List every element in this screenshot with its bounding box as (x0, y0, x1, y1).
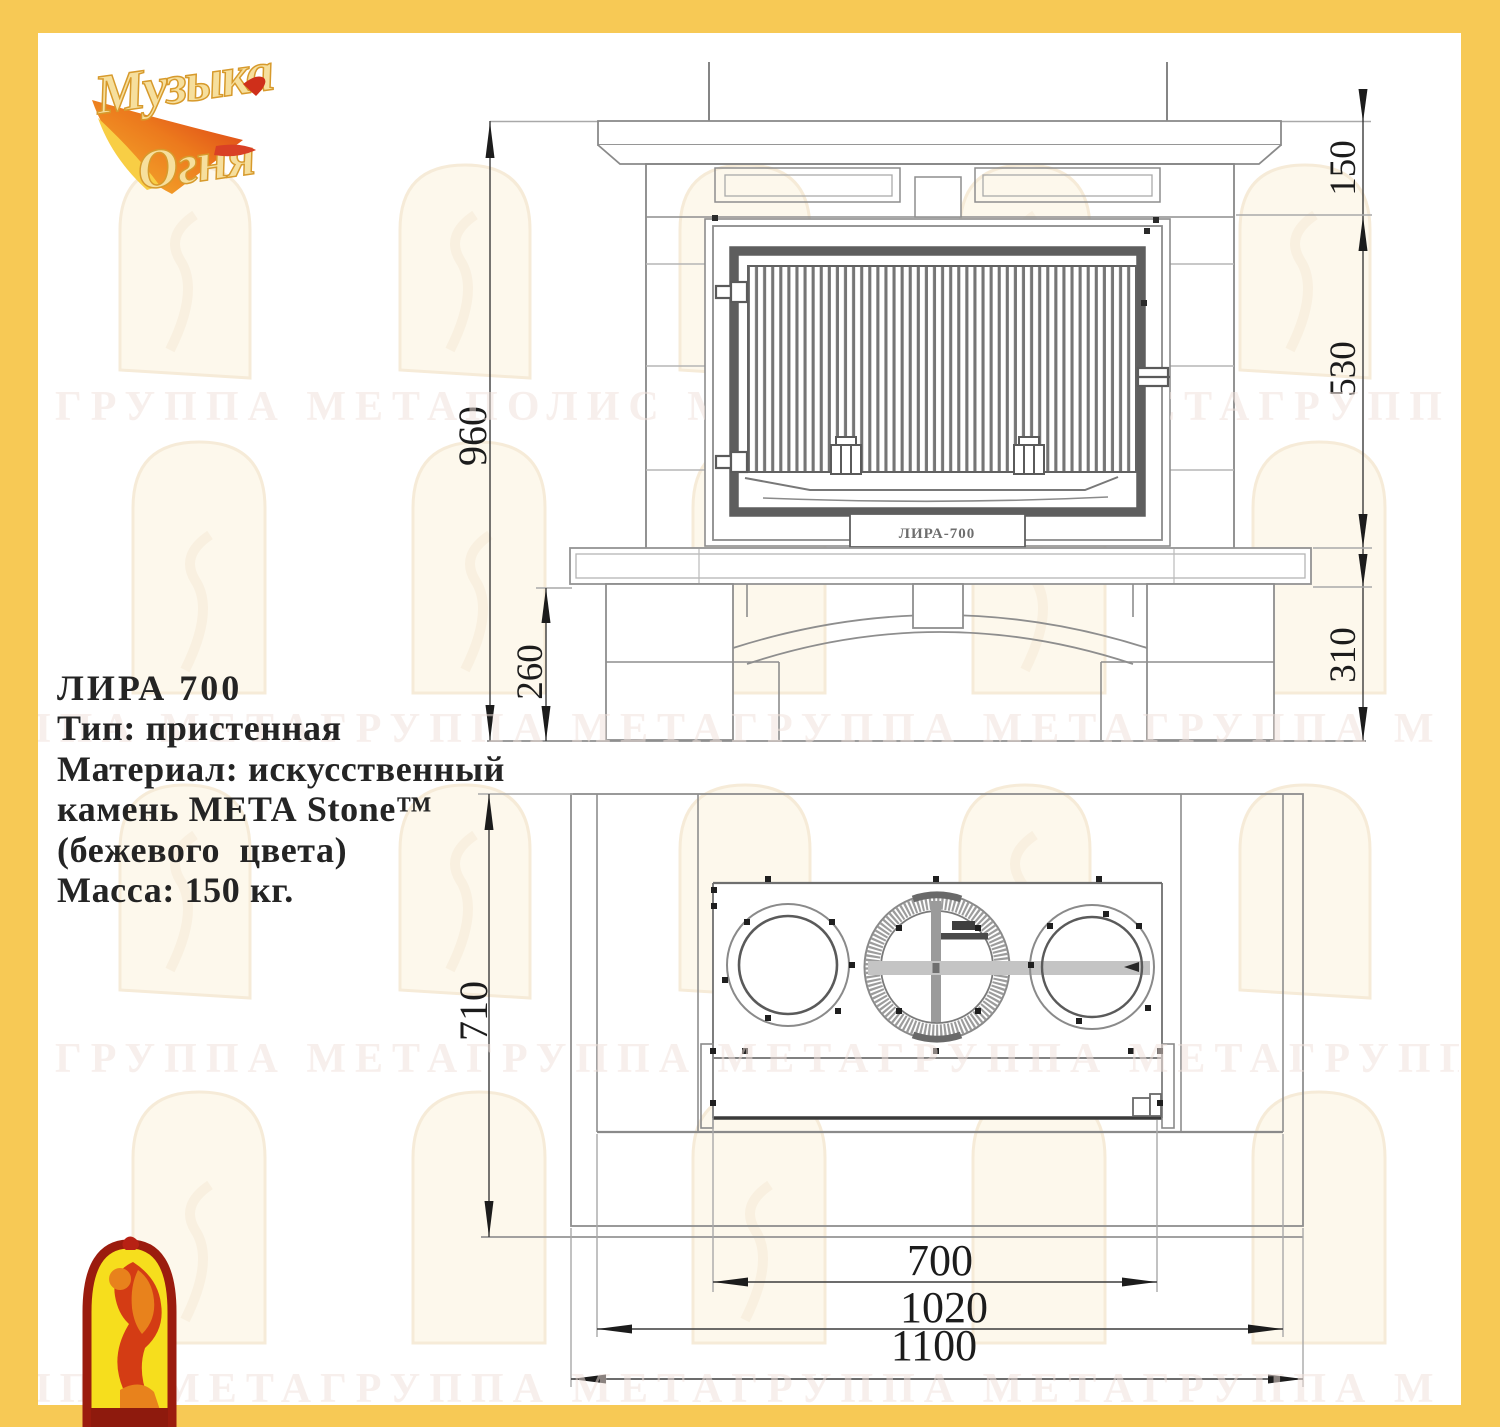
svg-text:700: 700 (907, 1236, 973, 1285)
svg-text:710: 710 (451, 981, 496, 1041)
svg-text:260: 260 (510, 644, 551, 700)
svg-text:1100: 1100 (891, 1321, 977, 1370)
svg-text:ГРУППА МЕТАГРУППА МЕТАГРУППА М: ГРУППА МЕТАГРУППА МЕТАГРУППА МЕТАГРУПП (55, 1036, 1481, 1082)
svg-text:ЛИРА-700: ЛИРА-700 (899, 526, 975, 542)
svg-text:150: 150 (1323, 140, 1364, 196)
svg-text:ППА МЕТАГРУППА МЕТАГРУППА МЕТА: ППА МЕТАГРУППА МЕТАГРУППА МЕТАГРУППА М (18, 1366, 1443, 1412)
svg-text:310: 310 (1323, 627, 1364, 683)
